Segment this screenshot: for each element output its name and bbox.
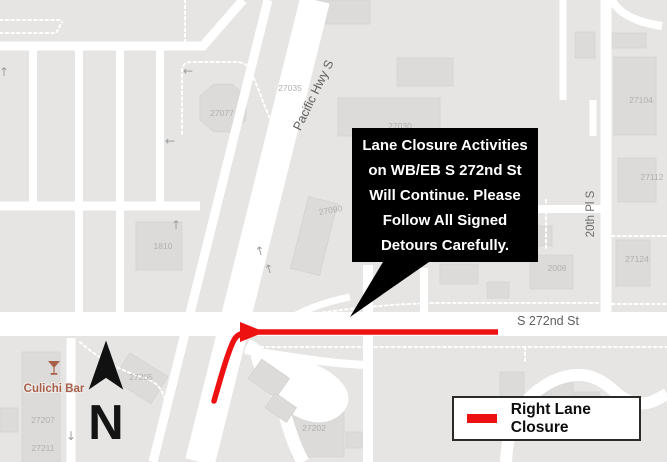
callout-tail [350,262,429,317]
building-number: 27104 [629,95,653,105]
street-label-s272nd: S 272nd St [517,314,579,328]
callout-text-line: Lane Closure Activities [352,133,538,158]
building-number: 27077 [210,108,234,118]
oneway-up-icon: ↑ [171,218,181,232]
building-number: 27211 [31,443,54,453]
closure-line-swatch [467,414,497,423]
building-number: 27202 [302,423,326,433]
closure-callout: Lane Closure Activities on WB/EB S 272nd… [352,128,538,262]
building-number: 27112 [640,172,663,182]
map-canvas: ← ← ↑ ↑ ↑ ↑ ↓ 27077 27035 27030 27090 18… [0,0,667,462]
callout-text-line: Detours Carefully. [352,233,538,258]
street-label-20th-pl: 20th Pl S [585,190,597,237]
building-number: 27035 [278,83,302,93]
legend-box: Right Lane Closure [452,396,641,441]
oneway-left-icon: ← [165,134,175,148]
building-number: 1810 [154,241,173,251]
building-number: 27205 [129,372,153,382]
cocktail-icon [47,361,61,377]
callout-text-line: Follow All Signed [352,208,538,233]
building-number: 27124 [625,254,649,264]
oneway-down-icon: ↓ [66,429,76,443]
poi-culichi-bar: Culichi Bar [10,361,98,395]
building-number: 2006 [548,263,567,273]
north-label: N [84,399,128,448]
oneway-up-icon: ↑ [0,65,9,79]
callout-text-line: Will Continue. Please [352,183,538,208]
poi-label: Culichi Bar [10,383,98,395]
oneway-up-icon: ↑ [262,261,275,277]
building-number: 27207 [31,415,55,425]
legend-label: Right Lane Closure [511,401,639,437]
oneway-left-icon: ← [183,64,193,78]
callout-text-line: on WB/EB S 272nd St [352,158,538,183]
